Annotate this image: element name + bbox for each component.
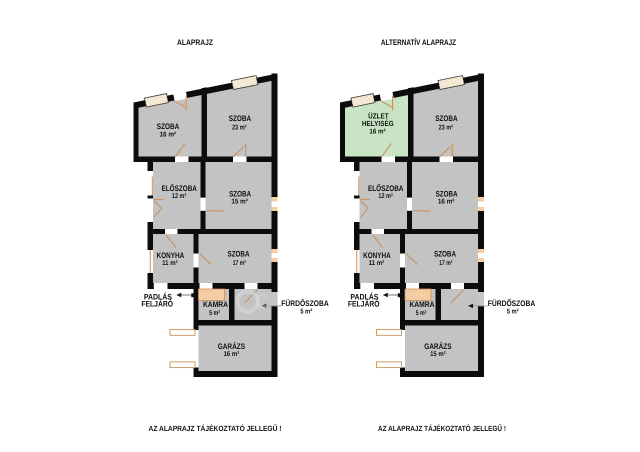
svg-text:KAMRA: KAMRA <box>409 300 434 309</box>
svg-text:12 m²: 12 m² <box>378 193 393 200</box>
svg-text:FELJÁRÓ: FELJÁRÓ <box>348 299 380 309</box>
svg-text:5 m²: 5 m² <box>507 308 520 315</box>
svg-text:16 m²: 16 m² <box>224 351 240 358</box>
svg-text:SZOBA: SZOBA <box>157 122 180 131</box>
svg-text:16 m²: 16 m² <box>369 128 386 135</box>
svg-text:ALAPRAJZ: ALAPRAJZ <box>177 38 213 47</box>
svg-text:16 m²: 16 m² <box>160 132 177 139</box>
svg-text:15 m²: 15 m² <box>430 351 446 358</box>
svg-text:11 m²: 11 m² <box>162 260 178 267</box>
svg-text:HELYISÉG: HELYISÉG <box>362 119 394 128</box>
svg-text:SZOBA: SZOBA <box>229 189 251 198</box>
svg-text:AZ ALAPRAJZ TÁJÉKOZTATÓ JELLEG: AZ ALAPRAJZ TÁJÉKOZTATÓ JELLEGŰ ! <box>378 424 506 433</box>
svg-text:15 m²: 15 m² <box>231 199 248 206</box>
svg-text:SZOBA: SZOBA <box>228 249 250 258</box>
svg-text:5 m²: 5 m² <box>416 310 428 317</box>
svg-text:AZ ALAPRAJZ TÁJÉKOZTATÓ JELLEG: AZ ALAPRAJZ TÁJÉKOZTATÓ JELLEGŰ ! <box>149 424 282 433</box>
svg-text:ELŐSZOBA: ELŐSZOBA <box>162 183 198 193</box>
svg-text:KONYHA: KONYHA <box>157 251 185 260</box>
svg-text:16 m²: 16 m² <box>438 199 455 206</box>
svg-text:FELJÁRÓ: FELJÁRÓ <box>141 299 173 309</box>
svg-text:SZOBA: SZOBA <box>436 189 458 198</box>
svg-text:ALTERNATÍV ALAPRAJZ: ALTERNATÍV ALAPRAJZ <box>381 37 456 47</box>
svg-text:KAMRA: KAMRA <box>203 300 228 309</box>
svg-text:KONYHA: KONYHA <box>363 251 391 260</box>
svg-text:17 m²: 17 m² <box>233 260 247 267</box>
svg-text:GARÁZS: GARÁZS <box>424 341 452 351</box>
svg-text:5 m²: 5 m² <box>300 308 313 315</box>
svg-text:23 m²: 23 m² <box>439 125 454 132</box>
svg-text:SZOBA: SZOBA <box>229 114 252 123</box>
svg-text:ELŐSZOBA: ELŐSZOBA <box>368 183 404 193</box>
svg-text:SZOBA: SZOBA <box>434 249 456 258</box>
svg-text:FÜRDŐSZOBA: FÜRDŐSZOBA <box>488 298 536 308</box>
svg-text:GARÁZS: GARÁZS <box>218 341 246 351</box>
svg-text:11 m²: 11 m² <box>369 260 385 267</box>
svg-text:23 m²: 23 m² <box>232 125 247 132</box>
svg-text:5 m²: 5 m² <box>209 310 221 317</box>
svg-text:SZOBA: SZOBA <box>435 114 458 123</box>
svg-text:17 m²: 17 m² <box>439 260 453 267</box>
svg-text:12 m²: 12 m² <box>172 193 187 200</box>
svg-text:FÜRDŐSZOBA: FÜRDŐSZOBA <box>281 298 329 308</box>
